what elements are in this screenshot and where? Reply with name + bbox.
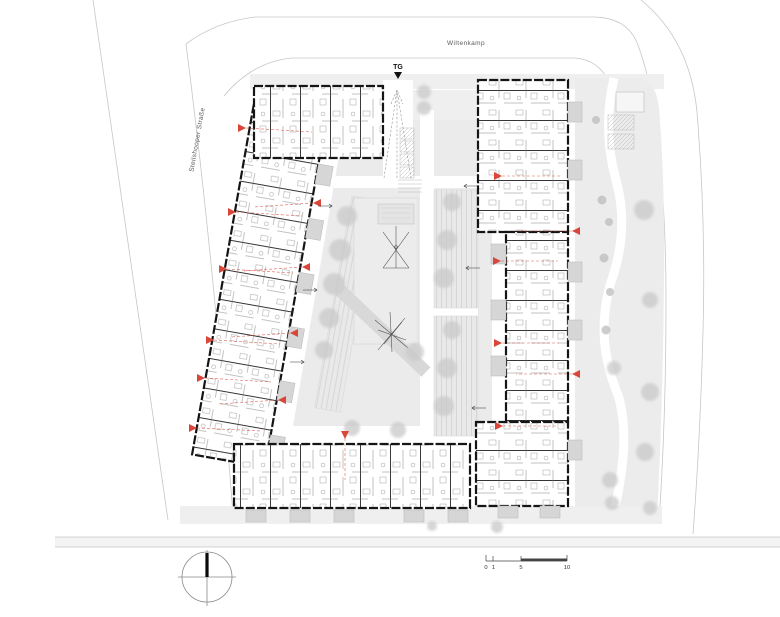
terrace — [448, 510, 468, 522]
terrace — [498, 506, 518, 518]
balcony — [568, 262, 582, 282]
tree — [437, 230, 457, 250]
scale-tick-1: 1 — [492, 565, 495, 571]
garden-hatch — [608, 134, 634, 149]
scale-tick-5: 5 — [519, 565, 522, 571]
bush — [605, 218, 613, 226]
tree — [605, 496, 619, 510]
tree — [329, 239, 351, 261]
terrace — [290, 510, 310, 522]
tree — [427, 521, 437, 531]
building-northwest-arm — [254, 86, 383, 158]
bike-rack — [400, 167, 414, 178]
bike-rack — [400, 154, 414, 165]
tree — [417, 85, 431, 99]
balcony — [568, 320, 582, 340]
tg-label: TG — [393, 64, 403, 71]
terrace — [540, 506, 560, 518]
tree — [643, 501, 657, 515]
tree — [319, 308, 339, 328]
terrace — [334, 510, 354, 522]
tree — [434, 268, 454, 288]
bush — [606, 288, 614, 296]
bush — [600, 254, 609, 263]
balcony — [568, 160, 582, 180]
tree — [315, 341, 333, 359]
tree — [491, 521, 503, 533]
building-northwest-interior — [254, 86, 383, 158]
tree — [406, 343, 424, 361]
terrace — [404, 510, 424, 522]
path-courtyard-vertical — [420, 110, 434, 440]
balcony — [491, 356, 506, 376]
tree — [636, 443, 654, 461]
tree — [337, 206, 357, 226]
tree — [642, 292, 658, 308]
bike-rack — [400, 141, 414, 152]
tree — [443, 321, 461, 339]
tree — [390, 422, 406, 438]
balcony — [286, 326, 304, 348]
entrance-marker-icon — [238, 124, 246, 132]
balcony — [305, 218, 323, 240]
garden-plot-outline — [616, 92, 644, 112]
building-south-interior — [234, 444, 470, 508]
scale-tick-10: 10 — [564, 565, 570, 571]
tree — [323, 273, 345, 295]
tree — [417, 101, 431, 115]
building-east-mid-interior — [506, 232, 568, 422]
terrace — [246, 510, 266, 522]
balcony — [315, 164, 333, 186]
street-label-top: Wiltenkamp — [447, 40, 485, 47]
balcony — [296, 272, 314, 294]
tree — [607, 361, 621, 375]
street-label-left: Steilshooper Straße — [188, 107, 206, 172]
tree — [641, 383, 659, 401]
tree — [434, 396, 454, 416]
balcony — [568, 440, 582, 460]
tree — [634, 200, 654, 220]
street-left-outer-line — [93, 0, 168, 520]
bush — [592, 116, 600, 124]
entrance-marker-icon — [197, 374, 205, 382]
bush — [602, 326, 611, 335]
building-east-bottom-interior — [476, 422, 568, 506]
garden-hatch — [608, 115, 634, 130]
balcony — [491, 300, 506, 320]
balcony — [568, 102, 582, 122]
north-arrow-icon — [178, 550, 236, 606]
site-plan-page: Wiltenkamp Steilshooper Straße — [0, 0, 780, 617]
bike-rack — [400, 128, 414, 139]
tree — [443, 193, 461, 211]
bush — [598, 196, 607, 205]
street-bottom-band — [55, 537, 780, 547]
building-east-top-interior — [478, 80, 568, 232]
scale-bar: 0 1 5 10 — [484, 555, 570, 571]
sandbox — [378, 204, 414, 224]
path-between-beds — [434, 308, 478, 316]
tree — [602, 472, 618, 488]
site-plan-canvas: Wiltenkamp Steilshooper Straße — [0, 0, 780, 617]
tree — [437, 358, 457, 378]
scale-tick-0: 0 — [484, 565, 487, 571]
